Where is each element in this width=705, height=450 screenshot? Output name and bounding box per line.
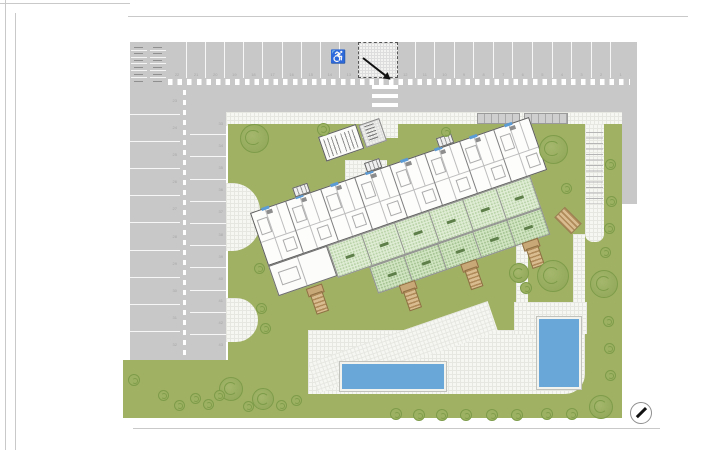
sheet-edge-top	[0, 3, 130, 4]
parking-stall: 22	[168, 42, 186, 78]
unit-wall	[310, 193, 321, 221]
moto-stall-mark	[153, 74, 162, 75]
moto-stall-mark	[153, 53, 162, 54]
terrace-furniture-mark	[379, 242, 388, 247]
bush	[203, 399, 214, 410]
bush-line	[607, 346, 613, 352]
unit-wall	[484, 133, 495, 161]
swimming-pool	[340, 362, 446, 391]
parking-stall: 10	[434, 42, 454, 78]
bush	[541, 408, 553, 420]
unit-bath-block	[405, 161, 412, 167]
parking-stall-number: 19	[225, 73, 243, 77]
ramp-arrow-icon	[362, 57, 390, 80]
unit-wall	[380, 169, 391, 197]
parking-stall-number: 26	[173, 180, 177, 184]
parking-stall: 29	[130, 250, 180, 277]
unit-furniture	[317, 224, 333, 241]
tree	[539, 135, 568, 164]
unit-furniture	[326, 192, 342, 211]
parking-stall: 26	[130, 168, 180, 195]
parking-stall-number: 21	[187, 73, 205, 77]
moto-stall-mark	[153, 67, 162, 68]
bush-line	[545, 412, 552, 419]
parking-stall-number: 27	[173, 207, 177, 211]
bush	[214, 390, 225, 401]
terrace-furniture-mark	[447, 218, 456, 223]
garden-furniture-mark	[490, 236, 499, 241]
bush-line	[161, 393, 167, 399]
parking-stall-number: 35	[219, 166, 223, 170]
parking-stall: 17	[262, 42, 281, 78]
terrace-furniture-mark	[514, 195, 523, 200]
unit-furniture	[361, 180, 377, 199]
tree-canopy-line	[245, 130, 261, 146]
site-plan-drawing: 22212019181716151413 121110987654321 ♿ 2…	[0, 0, 705, 450]
parking-stall-number: 41	[219, 299, 223, 303]
parking-stall: 3	[571, 42, 591, 78]
parking-stall-number: 29	[173, 262, 177, 266]
moto-stall-mark	[153, 60, 162, 61]
wheelchair-icon: ♿	[330, 50, 346, 63]
sheet-edge-left	[5, 0, 6, 450]
garden-furniture-mark	[387, 272, 396, 277]
parking-stalls-top-right: 121110987654321	[396, 42, 630, 78]
bush	[128, 374, 140, 386]
bush-line	[570, 412, 577, 419]
parking-stall-number: 9	[455, 73, 474, 77]
moto-stall-mark	[153, 47, 162, 48]
bush-line	[609, 199, 615, 205]
tree-canopy-line	[594, 400, 607, 413]
bush	[520, 282, 532, 294]
parking-stall-number: 40	[219, 277, 223, 281]
bush-line	[257, 266, 263, 272]
bush	[317, 123, 330, 136]
parking-stall-number: 17	[263, 73, 281, 77]
parking-stall: 20	[205, 42, 224, 78]
garage-ramp	[358, 42, 398, 78]
parking-stall-number: 15	[302, 73, 320, 77]
parking-stall-number: 13	[340, 73, 358, 77]
parking-stall-number: 2	[592, 73, 611, 77]
road-edge-top	[128, 16, 688, 17]
parking-stall-number: 24	[173, 126, 177, 130]
unit-bath-block	[509, 125, 516, 131]
bush-line	[193, 396, 199, 402]
parking-stall: 30	[130, 277, 180, 304]
parking-stall-number: 31	[173, 316, 177, 320]
parking-stall: 21	[186, 42, 205, 78]
road-arm-right	[620, 112, 637, 204]
tree-canopy-line	[257, 393, 269, 405]
unit-furniture	[525, 152, 541, 169]
moto-stall	[131, 57, 147, 64]
bush-line	[217, 393, 223, 399]
moto-stalls-column-b	[150, 44, 166, 84]
tree	[240, 124, 269, 153]
moto-stall	[131, 50, 147, 57]
bush	[291, 395, 302, 406]
parking-stall-number: 7	[494, 73, 513, 77]
unit-furniture	[282, 236, 298, 253]
terrace-furniture-mark	[413, 230, 422, 235]
bush-line	[417, 413, 424, 420]
parking-stall-number: 1	[611, 73, 630, 77]
parking-stall-number: 11	[416, 73, 435, 77]
tree-canopy-line	[596, 276, 611, 291]
bush	[561, 183, 572, 194]
bike-rack-icon	[323, 135, 343, 158]
stall-tick-band	[168, 79, 630, 85]
parking-stall: 34	[190, 134, 226, 156]
parking-stall-number: 38	[219, 233, 223, 237]
parking-stall: 27	[130, 195, 180, 222]
unit-furniture	[352, 212, 368, 229]
moto-stall-mark	[134, 53, 143, 54]
bush-line	[464, 413, 471, 420]
bush	[190, 393, 201, 404]
lane-dash-line	[183, 90, 186, 356]
bush-line	[320, 126, 327, 133]
parking-stall: 25	[130, 141, 180, 168]
parking-stall: 23	[130, 88, 180, 114]
moto-stall	[150, 77, 166, 84]
bush-line	[440, 413, 447, 420]
parking-stall-number: 37	[219, 210, 223, 214]
parking-stalls-left-column: 23242526272829303132	[130, 88, 180, 358]
bush	[600, 247, 611, 258]
stair-rungs-icon	[364, 123, 379, 141]
unit-furniture	[395, 168, 411, 187]
unit-furniture	[500, 132, 516, 151]
parking-stall-number: 28	[173, 235, 177, 239]
parking-stall: 16	[282, 42, 301, 78]
moto-stall	[131, 70, 147, 77]
parking-stall-number: 18	[244, 73, 262, 77]
moto-stall-mark	[134, 81, 143, 82]
parking-stall: 41	[190, 290, 226, 312]
unit-bath-block	[475, 137, 482, 143]
parking-stall: 18	[243, 42, 262, 78]
bush	[158, 390, 169, 401]
tree-canopy-line	[224, 382, 237, 395]
parking-stall: 24	[130, 114, 180, 141]
bush	[413, 409, 425, 421]
moto-stall	[131, 63, 147, 70]
bush	[486, 409, 498, 421]
parking-stall: 6	[512, 42, 532, 78]
bush-line	[608, 162, 614, 168]
bush	[604, 223, 615, 234]
parking-stall: 35	[190, 156, 226, 178]
garden-furniture-mark	[421, 260, 430, 265]
moto-stall	[150, 70, 166, 77]
bush-line	[177, 403, 183, 409]
bush	[441, 127, 451, 137]
compass-needle	[635, 407, 646, 418]
bush	[390, 408, 402, 420]
parking-stall: 5	[532, 42, 552, 78]
parking-stalls-right-column: 3334353637383940414243	[190, 113, 226, 356]
unit-wall	[415, 157, 426, 185]
unit-furniture	[430, 156, 446, 175]
parking-stall-number: 39	[219, 255, 223, 259]
parking-stall-number: 34	[219, 144, 223, 148]
bush	[254, 263, 265, 274]
unit-furniture	[421, 188, 437, 205]
bush-line	[206, 402, 212, 408]
bush-line	[603, 250, 609, 256]
bush-line	[608, 373, 614, 379]
unit-furniture	[256, 216, 272, 235]
parking-stall: 28	[130, 222, 180, 249]
parking-stall-number: 6	[513, 73, 532, 77]
unit-furniture	[386, 200, 402, 217]
tree	[590, 270, 618, 298]
sheet-frame-left	[15, 13, 16, 450]
parking-stall-number: 42	[219, 321, 223, 325]
tree	[252, 388, 274, 410]
parking-stall: 1	[610, 42, 630, 78]
crosswalk	[372, 85, 398, 109]
parking-stall-number: 32	[173, 343, 177, 347]
road-edge-bottom	[133, 428, 660, 429]
terrace-furniture-mark	[346, 253, 355, 258]
parking-stall-number: 3	[572, 73, 591, 77]
bush-line	[394, 412, 401, 419]
parking-stall: 40	[190, 267, 226, 289]
parking-stall: 43	[190, 334, 226, 356]
unit-bath-block	[440, 149, 447, 155]
bush-line	[607, 226, 613, 232]
bush	[605, 370, 616, 381]
bush	[606, 196, 617, 207]
tree-canopy-line	[513, 268, 524, 279]
parking-stall: 15	[301, 42, 320, 78]
unit-furniture	[456, 176, 472, 193]
parking-stall-number: 12	[396, 73, 415, 77]
unit-bath-block	[370, 173, 377, 179]
bush-line	[294, 398, 300, 404]
parking-stall-number: 22	[168, 73, 186, 77]
moto-stall	[150, 50, 166, 57]
parking-stall-number: 25	[173, 153, 177, 157]
unit-bath-block	[301, 197, 308, 203]
bush-line	[132, 378, 139, 385]
parking-stall: 19	[224, 42, 243, 78]
bush	[604, 343, 615, 354]
bush-line	[259, 306, 265, 312]
bush-line	[490, 413, 497, 420]
parking-stall-number: 33	[219, 122, 223, 126]
parking-stall-number: 43	[219, 343, 223, 347]
bush	[260, 323, 271, 334]
moto-stall-mark	[134, 67, 143, 68]
moto-stall-mark	[134, 47, 143, 48]
unit-bath-block	[336, 185, 343, 191]
parking-stall: 37	[190, 201, 226, 223]
bush	[566, 408, 578, 420]
unit-wall	[276, 205, 287, 233]
bush	[243, 401, 254, 412]
bush-line	[524, 286, 531, 293]
parking-stall: 7	[493, 42, 513, 78]
parking-stall: 36	[190, 179, 226, 201]
parking-stall: 39	[190, 245, 226, 267]
bush	[276, 400, 287, 411]
parking-stall: 32	[130, 331, 180, 358]
tree	[589, 395, 613, 419]
bike-rack-icon	[340, 129, 360, 152]
parking-stall-number: 20	[206, 73, 224, 77]
parking-stall: 8	[473, 42, 493, 78]
parking-stall: 33	[190, 113, 226, 134]
parking-stall-number: 16	[283, 73, 301, 77]
right-path-steps	[586, 132, 603, 204]
unit-wall	[519, 121, 530, 149]
parking-stall: 9	[454, 42, 474, 78]
moto-stall-mark	[153, 81, 162, 82]
parking-stall: 31	[130, 304, 180, 331]
terrace-furniture-mark	[481, 207, 490, 212]
moto-stalls-column-a	[131, 44, 147, 84]
parking-stall-number: 4	[553, 73, 572, 77]
bush	[605, 159, 616, 170]
parking-stall: 12	[396, 42, 415, 78]
bush-line	[246, 404, 252, 410]
garden-furniture-mark	[456, 248, 465, 253]
bush-line	[606, 319, 612, 325]
garden-stair	[310, 291, 329, 315]
unit-furniture	[291, 204, 307, 223]
unit-bath-block	[266, 209, 273, 215]
parking-stall-number: 10	[435, 73, 454, 77]
parking-stall: 38	[190, 223, 226, 245]
moto-stall	[131, 77, 147, 84]
parking-stall: 2	[591, 42, 611, 78]
parking-stall-number: 23	[173, 99, 177, 103]
moto-stall-mark	[134, 60, 143, 61]
parking-stall-number: 30	[173, 289, 177, 293]
bush	[603, 316, 614, 327]
parking-stall-number: 5	[533, 73, 552, 77]
tree-canopy-line	[543, 267, 560, 284]
bush	[511, 409, 523, 421]
bush-line	[444, 130, 450, 136]
unit-wall	[345, 181, 356, 209]
parking-stall: 4	[552, 42, 572, 78]
moto-stall-mark	[134, 74, 143, 75]
parking-stall-number: 14	[321, 73, 339, 77]
garden-furniture-mark	[524, 225, 533, 230]
tree	[509, 263, 529, 283]
moto-stall	[150, 57, 166, 64]
bush	[436, 409, 448, 421]
parking-stall-number: 8	[474, 73, 493, 77]
bush	[174, 400, 185, 411]
unit-furniture	[465, 144, 481, 163]
bush-line	[279, 403, 285, 409]
parking-stall: 11	[415, 42, 435, 78]
unit-wall	[449, 145, 460, 173]
unit-furniture	[491, 164, 507, 181]
bush-line	[564, 186, 570, 192]
swimming-pool	[537, 317, 581, 389]
parking-stall-number: 36	[219, 188, 223, 192]
bush	[256, 303, 267, 314]
bush	[460, 409, 472, 421]
tree	[537, 260, 569, 292]
parking-stall: 42	[190, 312, 226, 334]
moto-stall	[150, 63, 166, 70]
bush-line	[263, 326, 269, 332]
tree-canopy-line	[544, 141, 560, 157]
bush-line	[515, 413, 522, 420]
north-arrow-icon	[630, 402, 652, 424]
